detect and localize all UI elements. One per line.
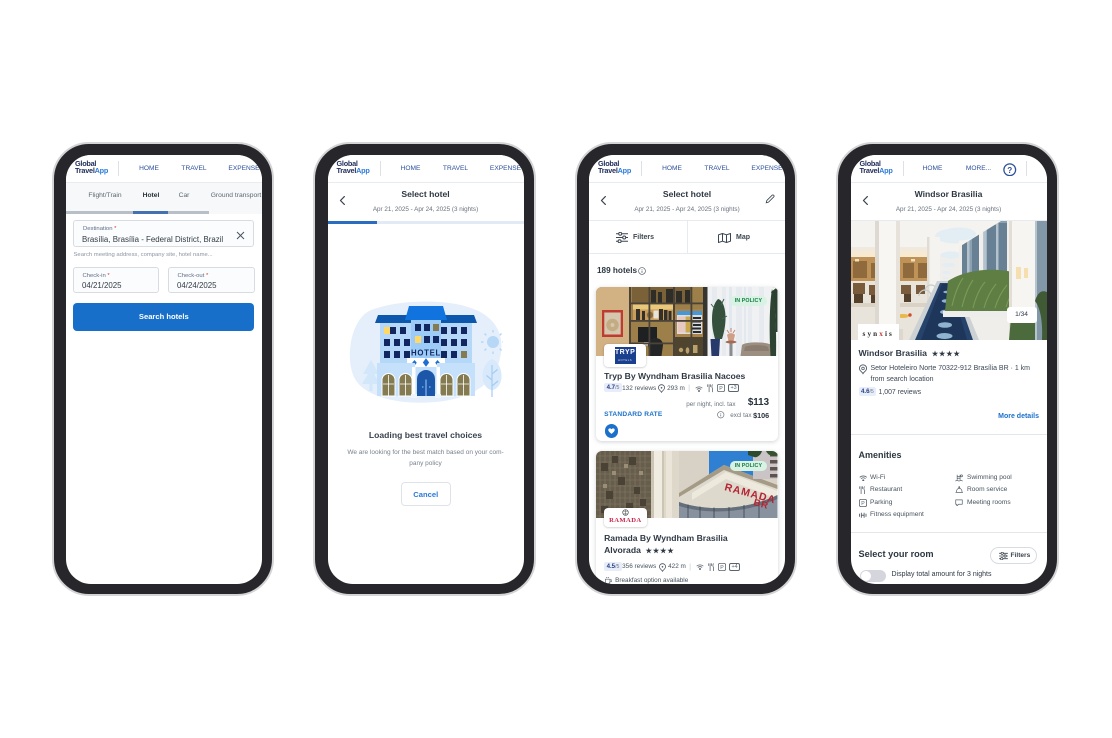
svg-text:HOTEL: HOTEL — [411, 349, 441, 358]
svg-text:P: P — [719, 386, 723, 392]
svg-text:P: P — [720, 565, 724, 571]
svg-text:P: P — [861, 500, 865, 506]
svg-text:?: ? — [1007, 165, 1012, 174]
